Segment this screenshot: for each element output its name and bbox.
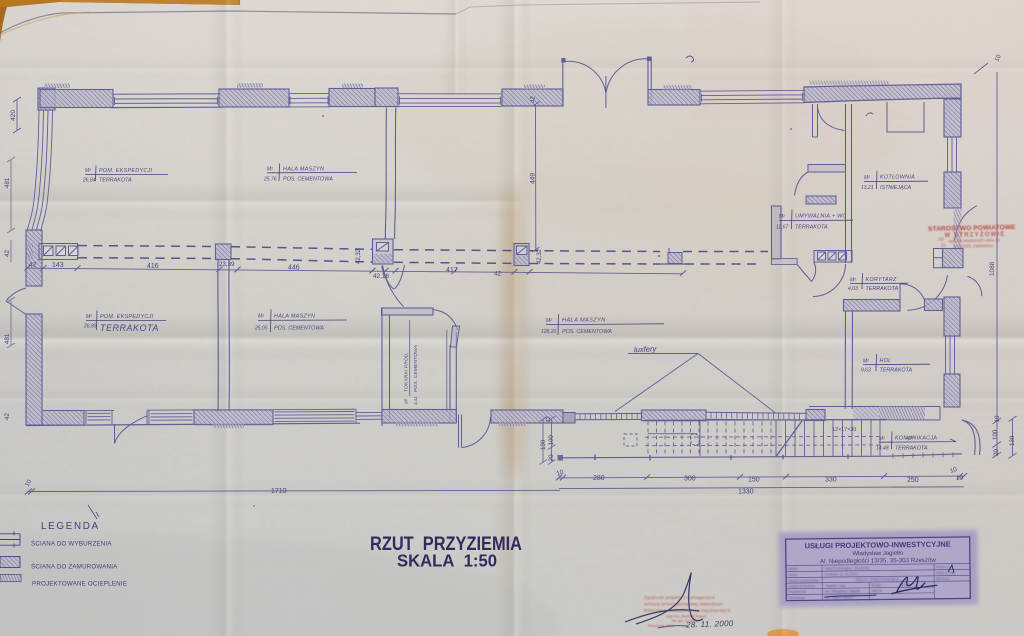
svg-text:M²: M² xyxy=(879,436,885,442)
svg-text:4,03: 4,03 xyxy=(848,286,858,292)
svg-text:HOL: HOL xyxy=(880,358,892,364)
svg-text:250: 250 xyxy=(907,477,919,484)
svg-text:20: 20 xyxy=(548,454,555,461)
svg-text:26,84: 26,84 xyxy=(82,178,96,184)
svg-text:42: 42 xyxy=(530,96,537,103)
svg-text:TERRAKOTA: TERRAKOTA xyxy=(880,368,913,374)
svg-text:1710: 1710 xyxy=(271,488,287,495)
svg-text:SKALA 1:50: SKALA 1:50 xyxy=(936,571,954,575)
svg-text:M²: M² xyxy=(85,168,91,174)
svg-text:128,20: 128,20 xyxy=(541,329,557,335)
svg-text:luxfery: luxfery xyxy=(634,344,658,354)
svg-text:42,32: 42,32 xyxy=(537,248,543,264)
svg-text:ISTNIEJĄCA: ISTNIEJĄCA xyxy=(880,185,912,191)
svg-text:150: 150 xyxy=(748,476,760,483)
svg-text:280: 280 xyxy=(593,475,605,482)
svg-text:20: 20 xyxy=(938,237,944,242)
svg-text:130: 130 xyxy=(540,439,547,450)
svg-text:Opracował: Opracował xyxy=(788,596,805,600)
svg-text:POM. EKSPEDYCJI: POM. EKSPEDYCJI xyxy=(99,168,153,174)
svg-text:TOKARKI PROD.: TOKARKI PROD. xyxy=(404,352,410,392)
svg-text:M²: M² xyxy=(863,359,869,365)
svg-text:M²: M² xyxy=(258,314,264,320)
svg-text:TERRAKOTA: TERRAKOTA xyxy=(866,286,899,292)
svg-text:28. 11. 2000: 28. 11. 2000 xyxy=(685,619,734,630)
svg-text:330: 330 xyxy=(825,476,837,483)
svg-text:Zgodność projektu z wymagan: Zgodność projektu z wymaganiami xyxy=(644,595,715,600)
svg-text:42: 42 xyxy=(4,250,11,257)
svg-text:25,05: 25,05 xyxy=(254,326,268,332)
svg-text:1088: 1088 xyxy=(989,261,996,276)
svg-text:159/76: 159/76 xyxy=(871,589,882,593)
svg-text:Przebud. dz. Nr 204/1: Przebud. dz. Nr 204/1 xyxy=(825,572,858,576)
svg-text:14,48: 14,48 xyxy=(876,446,889,452)
svg-text:Obiekt: Obiekt xyxy=(788,567,798,571)
svg-text:11: 11 xyxy=(941,243,946,248)
svg-text:Zespół projektowy: Zespół projektowy xyxy=(788,584,816,588)
svg-text:42: 42 xyxy=(29,262,37,269)
svg-text:ochrony przeciwpożarowej stwie: ochrony przeciwpożarowej stwierdzam xyxy=(644,602,723,607)
svg-text:143: 143 xyxy=(52,262,64,269)
svg-text:416: 416 xyxy=(147,263,159,270)
svg-text:LEGENDA: LEGENDA xyxy=(41,521,100,532)
svg-text:481: 481 xyxy=(4,333,11,344)
svg-text:UMYWALNIA + WC: UMYWALNIA + WC xyxy=(795,214,847,220)
svg-text:POS. CEMENTOWA: POS. CEMENTOWA xyxy=(283,177,333,183)
svg-text:12×17×30: 12×17×30 xyxy=(832,427,856,433)
svg-text:12: 12 xyxy=(546,416,552,422)
svg-text:Hala Produkcyjna - Rozbiórka: Hala Produkcyjna - Rozbiórka xyxy=(825,566,870,571)
svg-text:100: 100 xyxy=(992,429,999,440)
svg-text:42: 42 xyxy=(494,270,502,277)
svg-text:POS. CEMENTOWA: POS. CEMENTOWA xyxy=(274,326,324,332)
svg-text:TERRAKOTA: TERRAKOTA xyxy=(100,323,159,333)
svg-text:481: 481 xyxy=(4,177,11,188)
svg-text:TERRAKOTA: TERRAKOTA xyxy=(99,178,132,184)
svg-text:ŚCIANA DO WYBURZENIA: ŚCIANA DO WYBURZENIA xyxy=(31,540,112,548)
svg-text:HALA MASZYN: HALA MASZYN xyxy=(283,167,324,173)
svg-text:POS. CEMENTOWA: POS. CEMENTOWA xyxy=(413,345,419,392)
svg-text:PROJEKTOWANE OCIEPLENIE: PROJEKTOWANE OCIEPLENIE xyxy=(32,581,127,588)
svg-text:13,21: 13,21 xyxy=(861,185,874,191)
svg-text:9,63: 9,63 xyxy=(861,368,871,374)
svg-text:M²: M² xyxy=(850,278,856,284)
svg-text:42: 42 xyxy=(4,413,11,420)
svg-text:42,16: 42,16 xyxy=(373,273,389,280)
svg-text:inż. Władysław Jagiełło: inż. Władysław Jagiełło xyxy=(825,589,860,593)
svg-text:SKALA 1:50: SKALA 1:50 xyxy=(397,551,497,571)
svg-text:20: 20 xyxy=(993,449,1000,456)
svg-text:KOTŁOWNIA: KOTŁOWNIA xyxy=(880,175,915,181)
svg-text:Temat: Temat xyxy=(788,573,797,577)
svg-text:nr 2/2000, załatwiono: nr 2/2000, załatwiono xyxy=(953,243,994,249)
svg-text:446: 446 xyxy=(288,264,300,271)
svg-text:23,39: 23,39 xyxy=(219,261,235,268)
svg-text:M²: M² xyxy=(267,167,273,173)
svg-text:KORYTARZ: KORYTARZ xyxy=(866,277,898,283)
svg-text:417: 417 xyxy=(446,267,458,274)
svg-text:Nazwa opracowania: Nazwa opracowania xyxy=(788,579,819,583)
svg-text:M²: M² xyxy=(779,214,785,220)
svg-text:USŁUGI PROJEKTOWO-INWESTYCYJNE: USŁUGI PROJEKTOWO-INWESTYCYJNE xyxy=(805,540,951,551)
svg-text:TERRAKOTA: TERRAKOTA xyxy=(795,225,828,231)
svg-text:ŚCIANA DO ZAMUROWANIA: ŚCIANA DO ZAMUROWANIA xyxy=(31,563,118,571)
svg-text:M²: M² xyxy=(404,398,409,404)
svg-text:20 spt.: 20 spt. xyxy=(871,583,881,587)
svg-text:300: 300 xyxy=(684,476,696,483)
svg-text:26,89: 26,89 xyxy=(83,324,97,330)
svg-text:NR RYS.: NR RYS. xyxy=(936,577,950,581)
svg-text:HALA MASZYN: HALA MASZYN xyxy=(562,318,606,324)
svg-text:FAZA P.T.: FAZA P.T. xyxy=(936,565,951,569)
svg-text:POM. EKSPEDYCJI: POM. EKSPEDYCJI xyxy=(100,314,154,320)
svg-text:RZUT PRZYZIEMIA: RZUT PRZYZIEMIA xyxy=(856,577,899,583)
svg-text:10: 10 xyxy=(956,475,963,482)
svg-text:130: 130 xyxy=(1009,435,1016,446)
svg-text:Projektował: Projektował xyxy=(788,590,806,594)
svg-text:11,67: 11,67 xyxy=(776,225,788,231)
svg-text:10: 10 xyxy=(994,415,1001,422)
svg-text:HALA MASZYN: HALA MASZYN xyxy=(274,314,315,320)
svg-text:POS. CEMENTOWA: POS. CEMENTOWA xyxy=(562,329,612,335)
svg-text:1330: 1330 xyxy=(738,489,754,496)
svg-text:TERRAKOTA: TERRAKOTA xyxy=(895,446,928,452)
svg-text:KOMUNIKACJA: KOMUNIKACJA xyxy=(895,436,937,442)
svg-text:Jagiełło i wsp.: Jagiełło i wsp. xyxy=(825,584,846,588)
svg-text:42,32: 42,32 xyxy=(356,248,362,264)
svg-text:100: 100 xyxy=(548,435,555,446)
svg-text:449: 449 xyxy=(530,173,537,184)
svg-text:M²: M² xyxy=(864,175,870,181)
svg-text:M²: M² xyxy=(86,314,92,320)
svg-text:4,41: 4,41 xyxy=(413,396,418,405)
svg-text:M²: M² xyxy=(546,318,552,324)
svg-text:420: 420 xyxy=(10,110,17,121)
svg-text:25,76: 25,76 xyxy=(263,177,277,183)
